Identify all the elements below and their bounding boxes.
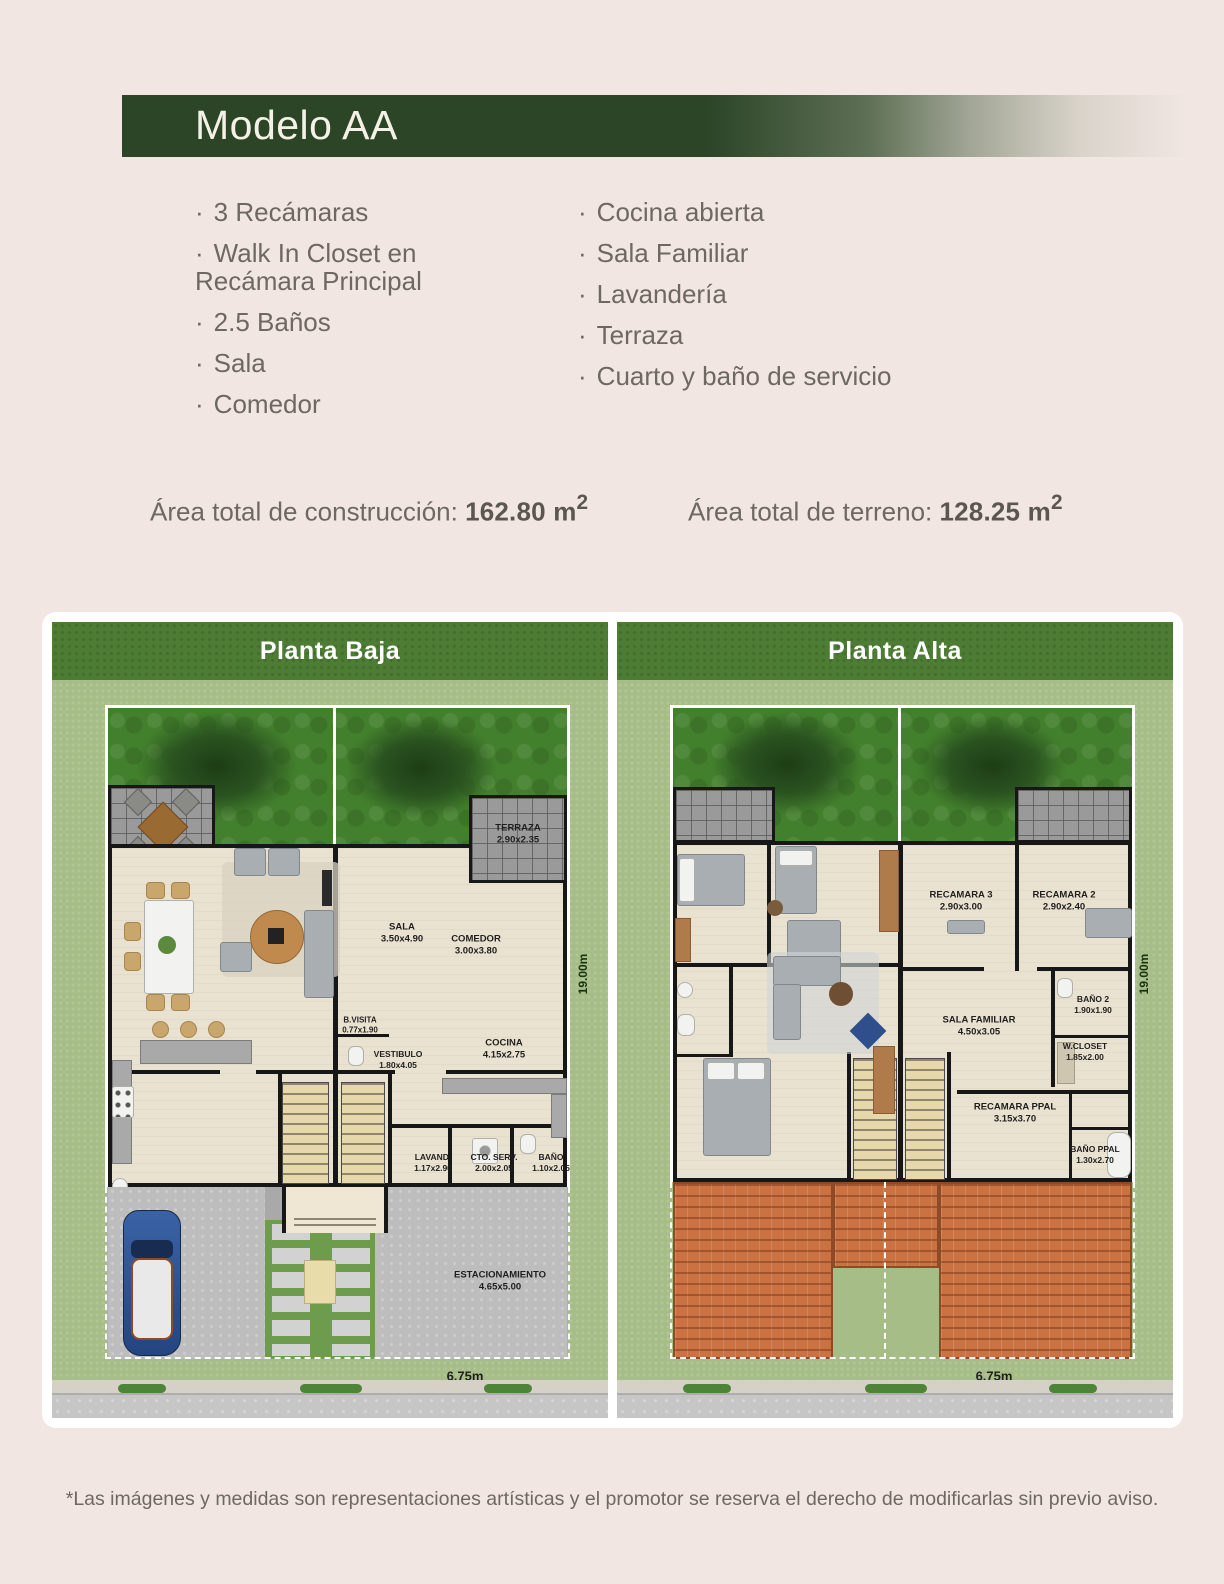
- feature-item: Lavandería: [578, 280, 892, 308]
- area-construction-label: Área total de construcción:: [150, 497, 465, 527]
- plan-alta-title: Planta Alta: [828, 637, 962, 666]
- room-label-bano-ppal: BAÑO PPAL1.30x2.70: [1070, 1144, 1119, 1166]
- lot-boundary: [670, 705, 1135, 1182]
- room-label-vestibulo: VESTIBULO1.80x4.05: [374, 1049, 423, 1071]
- feature-item: Sala: [195, 349, 422, 377]
- room-label-bvisita: B.VISITA0.77x1.90: [342, 1016, 378, 1037]
- lot-height-dimension: 19.00m: [576, 954, 590, 995]
- superscript-2: 2: [577, 491, 589, 514]
- room-label-terraza: TERRAZA2.90x2.35: [495, 823, 540, 848]
- room-label-estacionamiento: ESTACIONAMIENTO4.65x5.00: [454, 1270, 546, 1295]
- street: [52, 1393, 608, 1418]
- features-column-left: 3 RecámarasWalk In Closet en Recámara Pr…: [195, 198, 422, 418]
- superscript-2: 2: [1051, 491, 1063, 514]
- feature-item: 2.5 Baños: [195, 308, 422, 336]
- floorplans-card: Planta Baja: [42, 612, 1183, 1428]
- feature-item: Terraza: [578, 321, 892, 349]
- room-label-comedor: COMEDOR3.00x3.80: [451, 934, 501, 959]
- area-construction: Área total de construcción: 162.80 m2: [150, 493, 588, 528]
- bush-icon: [683, 1384, 731, 1393]
- lot-height-dimension: 19.00m: [1137, 954, 1151, 995]
- feature-item: Comedor: [195, 390, 422, 418]
- bush-icon: [865, 1384, 927, 1393]
- bush-icon: [484, 1384, 532, 1393]
- area-terrain-label: Área total de terreno:: [688, 497, 939, 527]
- plan-baja-title-band: Planta Baja: [52, 622, 608, 680]
- model-title-bar: Modelo AA: [122, 95, 1185, 157]
- area-terrain-value: 128.25 m: [939, 497, 1050, 527]
- room-label-recamara-ppal: RECAMARA PPAL3.15x3.70: [974, 1102, 1056, 1127]
- room-label-recamara2: RECAMARA 22.90x2.40: [1033, 890, 1096, 915]
- plan-baja-title: Planta Baja: [260, 637, 400, 666]
- plan-planta-alta: Planta Alta: [617, 622, 1173, 1418]
- room-label-cocina: COCINA4.15x2.75: [483, 1038, 525, 1063]
- bush-icon: [1049, 1384, 1097, 1393]
- bush-icon: [118, 1384, 166, 1393]
- room-label-sala: SALA3.50x4.90: [381, 922, 423, 947]
- room-label-recamara3: RECAMARA 32.90x3.00: [930, 890, 993, 915]
- feature-item: Sala Familiar: [578, 239, 892, 267]
- room-label-sala-familiar: SALA FAMILIAR4.50x3.05: [942, 1015, 1015, 1040]
- room-label-lavanderia: LAVAND.1.17x2.90: [414, 1152, 452, 1174]
- plan-alta-title-band: Planta Alta: [617, 622, 1173, 680]
- room-label-wcloset: W.CLOSET1.85x2.00: [1063, 1041, 1107, 1063]
- street: [617, 1393, 1173, 1418]
- feature-item: Cocina abierta: [578, 198, 892, 226]
- disclaimer-text: *Las imágenes y medidas son representaci…: [66, 1488, 1159, 1510]
- lot-boundary-dashed: [670, 1182, 1135, 1359]
- feature-item: Walk In Closet en Recámara Principal: [195, 239, 422, 295]
- footer-disclaimer: *Las imágenes y medidas son representaci…: [0, 1488, 1224, 1511]
- plan-planta-baja: Planta Baja: [52, 622, 608, 1418]
- area-terrain: Área total de terreno: 128.25 m2: [688, 493, 1063, 528]
- bush-icon: [300, 1384, 362, 1393]
- area-construction-value: 162.80 m: [465, 497, 576, 527]
- feature-item: Cuarto y baño de servicio: [578, 362, 892, 390]
- room-label-bano2: BAÑO 21.90x1.90: [1074, 994, 1112, 1016]
- feature-item: 3 Recámaras: [195, 198, 422, 226]
- model-title: Modelo AA: [122, 95, 1185, 156]
- room-label-cto-servicio: CTO. SERV.2.00x2.05: [470, 1152, 517, 1174]
- brochure-page: Modelo AA 3 RecámarasWalk In Closet en R…: [0, 0, 1224, 1584]
- room-label-bano: BAÑO1.10x2.05: [532, 1152, 570, 1174]
- features-column-right: Cocina abiertaSala FamiliarLavanderíaTer…: [578, 198, 892, 390]
